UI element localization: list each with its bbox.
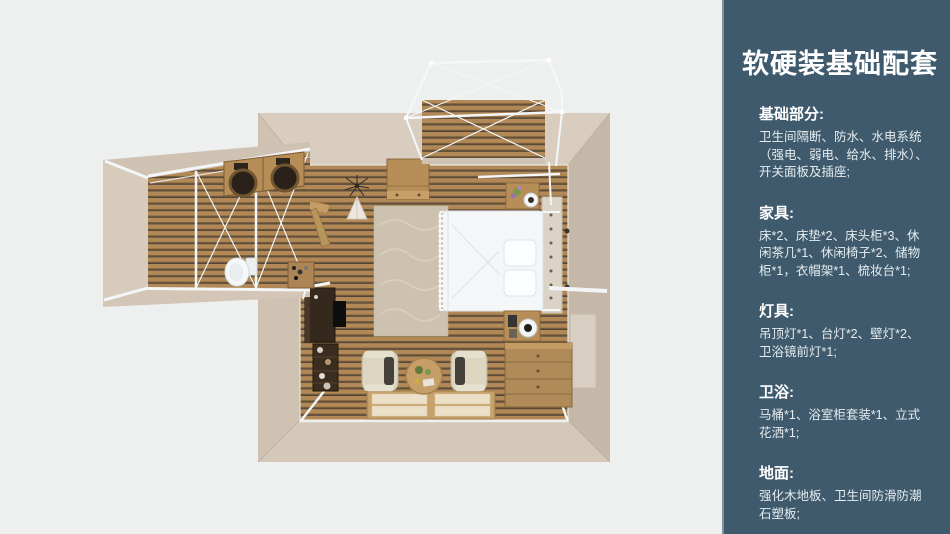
pillow-top (504, 240, 536, 266)
wall-bottom (258, 420, 610, 462)
section-bathroom-body: 马桶*1、浴室柜套装*1、立式 花洒*1; (759, 407, 938, 442)
tv-screen (333, 301, 346, 327)
section-basics: 基础部分: 卫生间隔断、防水、水电系统 （强电、弱电、给水、排水）、 开关面板及… (759, 103, 938, 182)
storage-dresser (505, 343, 572, 407)
section-bathroom: 卫浴: 马桶*1、浴室柜套装*1、立式 花洒*1; (759, 381, 938, 442)
section-flooring: 地面: 强化木地板、卫生间防滑防潮 石塑板; (759, 462, 938, 523)
spec-sections: 基础部分: 卫生间隔断、防水、水电系统 （强电、弱电、给水、排水）、 开关面板及… (742, 103, 938, 523)
section-flooring-body: 强化木地板、卫生间防滑防潮 石塑板; (759, 488, 938, 523)
section-lighting-body: 吊顶灯*1、台灯*2、壁灯*2、 卫浴镜前灯*1; (759, 326, 938, 361)
tea-table (406, 358, 442, 394)
nightstand-bottom (504, 311, 540, 341)
pillow-bottom (504, 270, 536, 296)
headboard-wall-panel (542, 197, 562, 313)
nightstand-top (506, 183, 539, 209)
leisure-chair-right (451, 351, 487, 391)
section-flooring-heading: 地面: (759, 462, 938, 483)
section-lighting: 灯具: 吊顶灯*1、台灯*2、壁灯*2、 卫浴镜前灯*1; (759, 300, 938, 361)
bath-vanity-items (288, 262, 314, 288)
leisure-chair-left (362, 351, 398, 391)
floorplan-render-area (0, 0, 722, 534)
wall-lamp-top (565, 229, 570, 234)
ladder-shelf (313, 344, 338, 391)
floor-mats (367, 391, 495, 419)
section-furniture-body: 床*2、床垫*2、床头柜*3、休 闲茶几*1、休闲椅子*2、储物 柜*1，衣帽架… (759, 228, 938, 281)
section-basics-heading: 基础部分: (759, 103, 938, 124)
section-lighting-heading: 灯具: (759, 300, 938, 321)
section-furniture-heading: 家具: (759, 202, 938, 223)
section-basics-body: 卫生间隔断、防水、水电系统 （强电、弱电、给水、排水）、 开关面板及插座; (759, 129, 938, 182)
slide: 软硬装基础配套 基础部分: 卫生间隔断、防水、水电系统 （强电、弱电、给水、排水… (0, 0, 950, 534)
top-cabinet (387, 159, 429, 199)
floorplan-top-view (0, 0, 722, 534)
balcony-threshold (422, 158, 545, 164)
section-furniture: 家具: 床*2、床垫*2、床头柜*3、休 闲茶几*1、休闲椅子*2、储物 柜*1… (759, 202, 938, 281)
annex-wall-left (103, 160, 148, 300)
sink-left (230, 170, 256, 196)
sidebar-title: 软硬装基础配套 (742, 42, 938, 81)
wall-mirror-panel (570, 314, 596, 388)
spec-sidebar: 软硬装基础配套 基础部分: 卫生间隔断、防水、水电系统 （强电、弱电、给水、排水… (722, 0, 950, 534)
area-rug (374, 206, 448, 336)
section-bathroom-heading: 卫浴: (759, 381, 938, 402)
sink-right (272, 165, 298, 191)
bathroom-annex (103, 142, 330, 307)
